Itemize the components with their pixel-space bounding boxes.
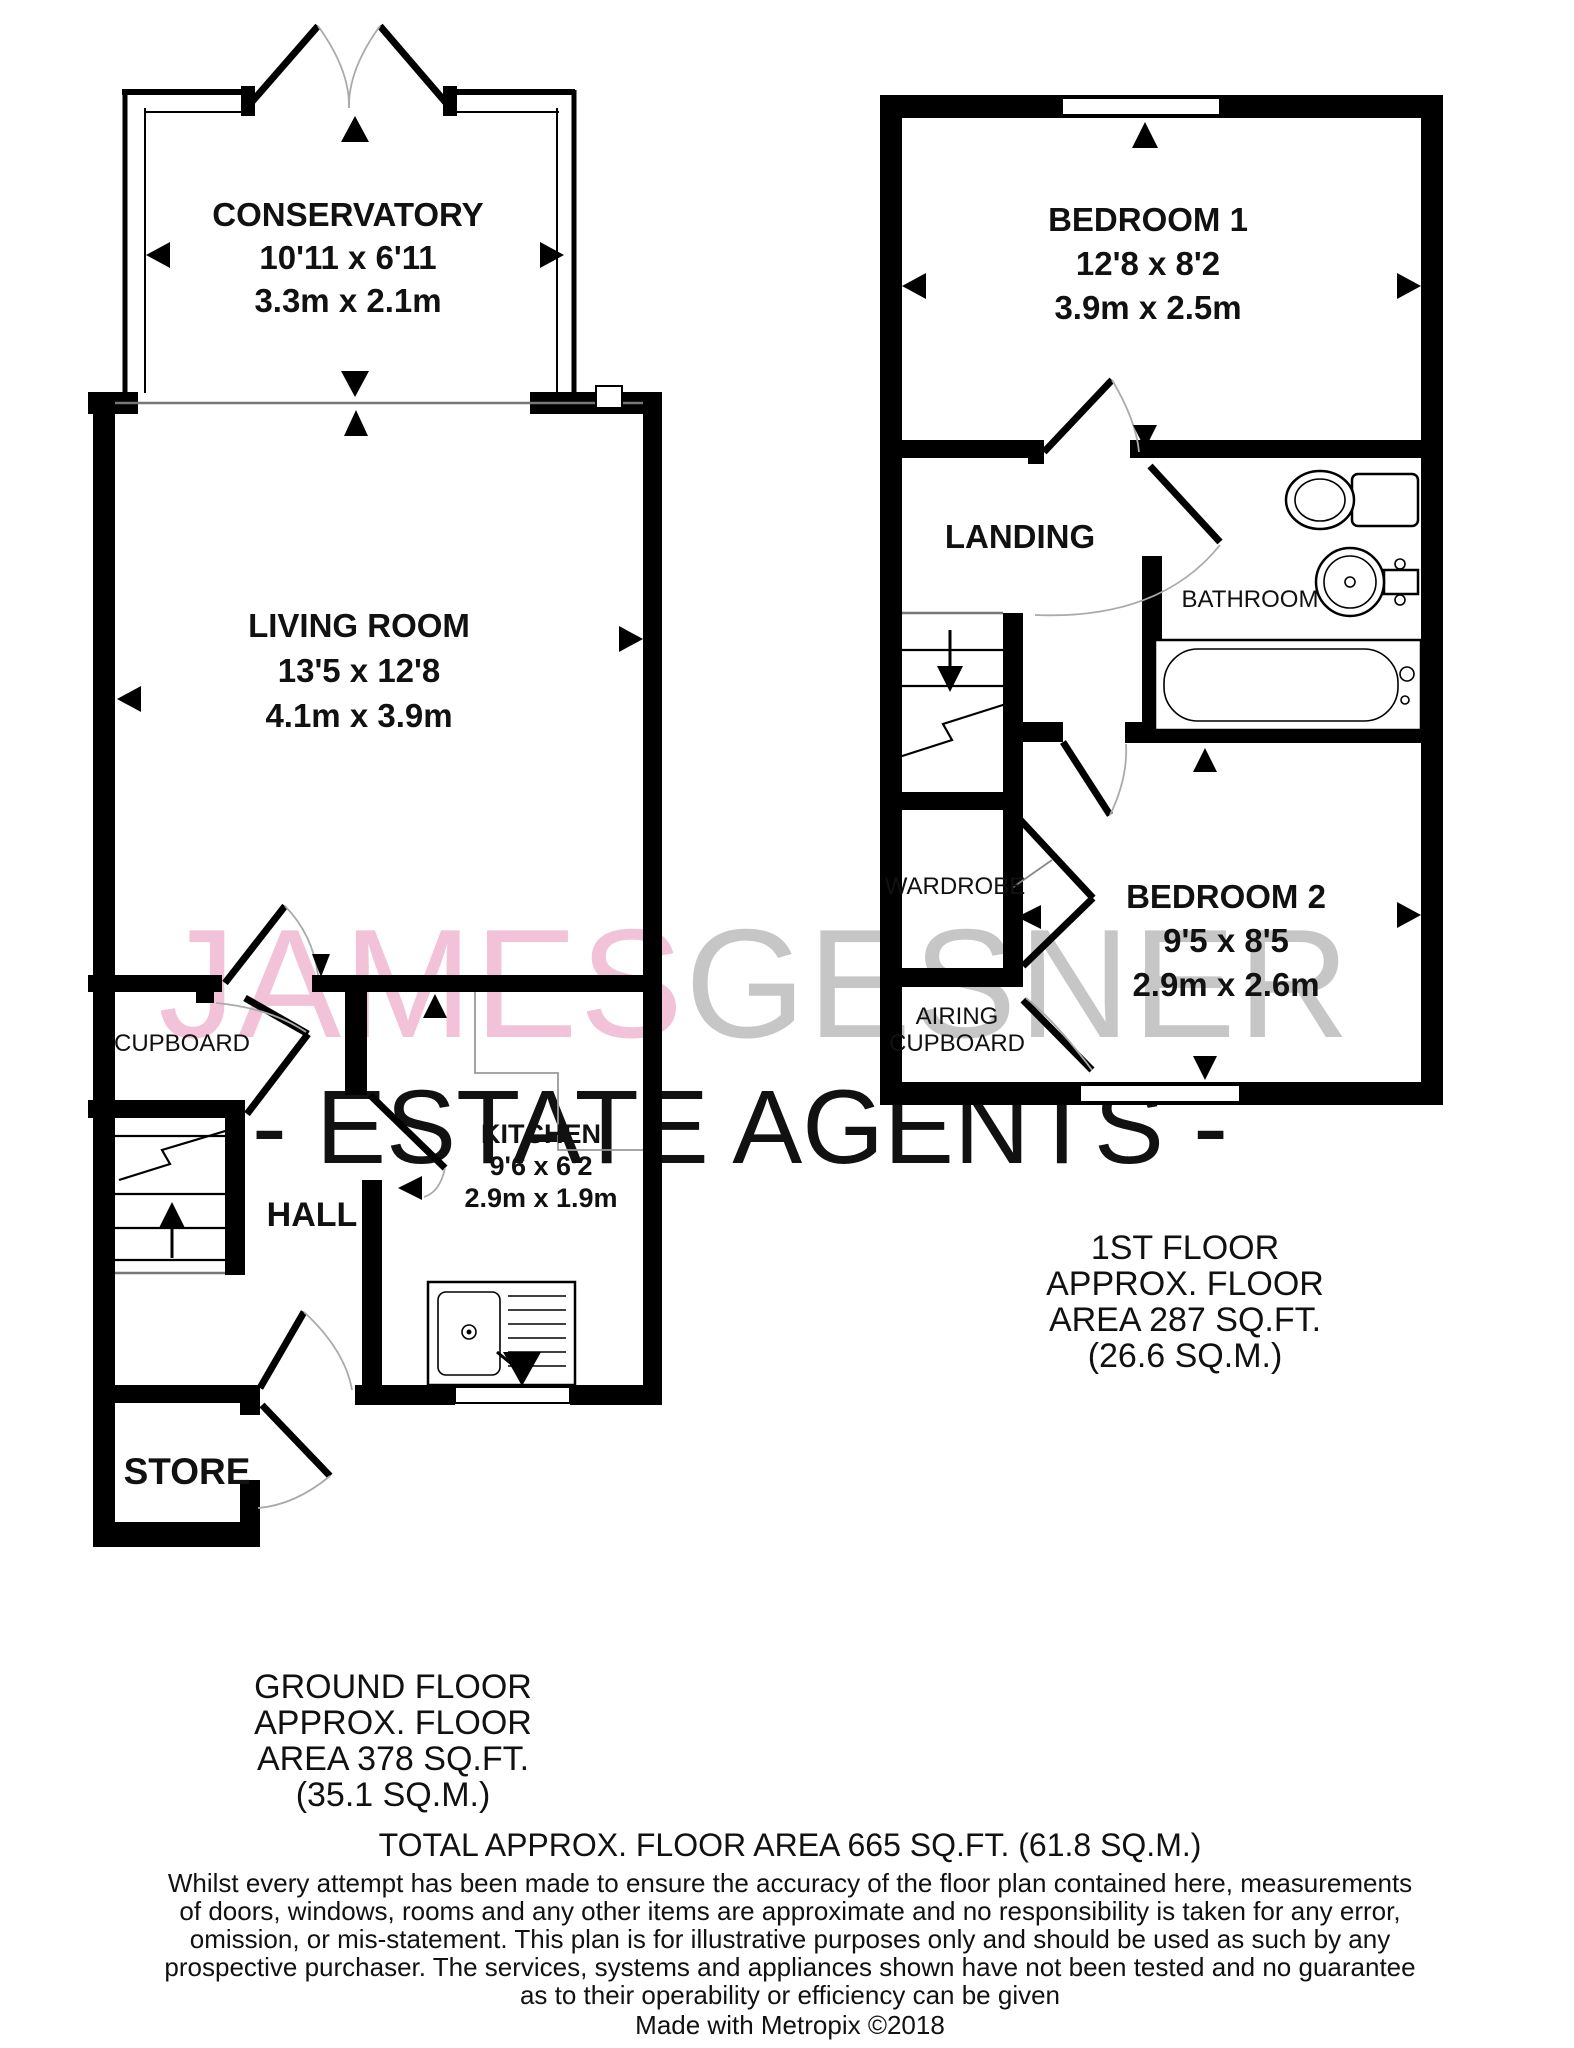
room-size-metric: 2.9m x 1.9m [464, 1183, 617, 1213]
wall [88, 975, 222, 992]
room-size-imperial: 13'5 x 12'8 [278, 652, 441, 689]
disclaimer-line: omission, or mis-statement. This plan is… [190, 1924, 1390, 1954]
direction-arrow-up-icon [344, 410, 368, 436]
door-arc [318, 26, 349, 108]
wall [225, 1113, 245, 1275]
footer: TOTAL APPROX. FLOOR AREA 665 SQ.FT. (61.… [164, 1827, 1415, 2040]
caption-line: AREA 287 SQ.FT. [1049, 1301, 1321, 1339]
wall [93, 1522, 260, 1547]
sink-drain-dot [467, 1330, 472, 1335]
direction-arrow-right-icon [540, 242, 564, 268]
stair-break-line [119, 1126, 242, 1180]
wall [880, 440, 1028, 458]
bath [1155, 640, 1421, 730]
ground-floor-area-caption: GROUND FLOOR APPROX. FLOOR AREA 378 SQ.F… [254, 1668, 532, 1814]
kitchen-sink [428, 1282, 575, 1385]
caption-line: APPROX. FLOOR [1046, 1265, 1324, 1303]
caption-line: (35.1 SQ.M.) [296, 1776, 491, 1814]
basin [1316, 548, 1418, 616]
wall [1421, 95, 1443, 1105]
room-size-metric: 2.9m x 2.6m [1132, 966, 1319, 1003]
patio-door-leaf [380, 26, 447, 104]
wall [892, 792, 1013, 810]
room-name: LIVING ROOM [248, 607, 470, 644]
disclaimer-line: of doors, windows, rooms and any other i… [179, 1896, 1400, 1926]
room-name: KITCHEN [481, 1119, 601, 1149]
basin-bowl [1316, 548, 1384, 616]
room-size-imperial: 9'5 x 8'5 [1163, 922, 1289, 959]
conservatory: CONSERVATORY 10'11 x 6'11 3.3m x 2.1m [122, 26, 575, 397]
direction-arrow-up-icon [341, 116, 369, 142]
window [455, 1387, 570, 1403]
room-name: WARDROBE [885, 873, 1025, 900]
wall [1023, 722, 1063, 742]
wall [1130, 440, 1443, 458]
door-leaf [1044, 380, 1112, 452]
direction-arrow-right-icon [1397, 273, 1421, 299]
direction-arrow-right-icon [1397, 902, 1421, 928]
wall [93, 393, 115, 1547]
room-size-imperial: 12'8 x 8'2 [1076, 245, 1220, 282]
room-size-metric: 3.9m x 2.5m [1054, 289, 1241, 326]
first-floor-area-caption: 1ST FLOOR APPROX. FLOOR AREA 287 SQ.FT. … [1046, 1229, 1324, 1375]
door-arc [349, 26, 380, 108]
direction-arrow-up-icon [1132, 122, 1158, 148]
door-arc [304, 1312, 352, 1390]
caption-line: (26.6 SQ.M.) [1088, 1337, 1283, 1375]
wall [93, 1385, 240, 1403]
room-name: BEDROOM 1 [1048, 201, 1248, 238]
room-size-imperial: 9'6 x 6'2 [490, 1151, 593, 1181]
room-name: HALL [267, 1196, 358, 1234]
store: STORE [93, 1405, 330, 1547]
bathroom: BATHROOM [1035, 466, 1421, 772]
room-name: LANDING [945, 518, 1095, 555]
credit-text: Made with Metropix ©2018 [635, 2010, 945, 2040]
sink-unit [428, 1282, 575, 1385]
direction-arrow-left-icon [902, 273, 926, 299]
basin-tap-block [1384, 570, 1418, 594]
room-name: CONSERVATORY [212, 196, 483, 233]
front-door-leaf [260, 1312, 304, 1388]
room-name: BEDROOM 2 [1126, 878, 1326, 915]
room-name-line2: CUPBOARD [889, 1030, 1025, 1057]
wall [88, 1100, 245, 1118]
bedroom-1: BEDROOM 1 12'8 x 8'2 3.9m x 2.5m [880, 122, 1443, 464]
toilet-cistern [1352, 474, 1418, 526]
ground-floor-plan: CONSERVATORY 10'11 x 6'11 3.3m x 2.1m LI… [88, 26, 662, 1547]
basin-tap [1395, 595, 1405, 605]
caption-line: 1ST FLOOR [1091, 1229, 1279, 1267]
direction-arrow-up-icon [1193, 748, 1217, 772]
patio-door-leaf [250, 26, 318, 104]
room-size-imperial: 10'11 x 6'11 [259, 239, 436, 276]
wall [1003, 613, 1023, 793]
wall [345, 992, 367, 1095]
door-jamb [196, 992, 214, 1003]
wall [643, 392, 662, 992]
floorplan-page: JAMESGESNER - ESTATE AGENTS - CONSER [0, 0, 1574, 2048]
floorplan-drawing: JAMESGESNER - ESTATE AGENTS - CONSER [0, 0, 1574, 2048]
room-name: CUPBOARD [114, 1030, 250, 1057]
stairs-up-arrow-icon [159, 1202, 185, 1228]
total-area-text: TOTAL APPROX. FLOOR AREA 665 SQ.FT. (61.… [379, 1827, 1202, 1863]
disclaimer-line: Whilst every attempt has been made to en… [168, 1868, 1412, 1898]
door-jamb [1028, 440, 1044, 464]
direction-arrow-right-icon [619, 626, 643, 652]
stair-break-line [896, 704, 1006, 758]
window [596, 386, 622, 408]
caption-line: APPROX. FLOOR [254, 1704, 532, 1742]
store-door-leaf [262, 1405, 330, 1476]
basin-tap [1395, 559, 1405, 569]
direction-arrow-down-icon [341, 371, 369, 397]
wall [362, 1180, 382, 1395]
caption-line: AREA 378 SQ.FT. [257, 1740, 529, 1778]
direction-arrow-left-icon [117, 686, 141, 712]
door-arc [258, 1476, 330, 1508]
door-jamb [240, 1385, 260, 1415]
room-name: STORE [124, 1451, 251, 1492]
window [1062, 98, 1220, 115]
wall [643, 992, 662, 1405]
room-size-metric: 3.3m x 2.1m [254, 282, 441, 319]
disclaimer-line: prospective purchaser. The services, sys… [164, 1952, 1415, 1982]
door-leaf [1063, 742, 1110, 815]
wall [880, 95, 902, 1105]
wall [355, 1385, 455, 1405]
room-size-metric: 4.1m x 3.9m [265, 697, 452, 734]
door-leaf [1150, 466, 1220, 542]
disclaimer-line: as to their operability or efficiency ca… [520, 1980, 1060, 2010]
wall [892, 968, 1023, 987]
caption-line: GROUND FLOOR [254, 1668, 532, 1706]
wall [312, 975, 662, 992]
door-arc [1110, 744, 1126, 815]
toilet [1286, 471, 1418, 529]
stairs-down-arrow-icon [937, 666, 963, 692]
direction-arrow-left-icon [146, 242, 170, 268]
room-name-line1: AIRING [916, 1003, 999, 1030]
window [1080, 1085, 1240, 1102]
room-name: BATHROOM [1182, 586, 1319, 613]
